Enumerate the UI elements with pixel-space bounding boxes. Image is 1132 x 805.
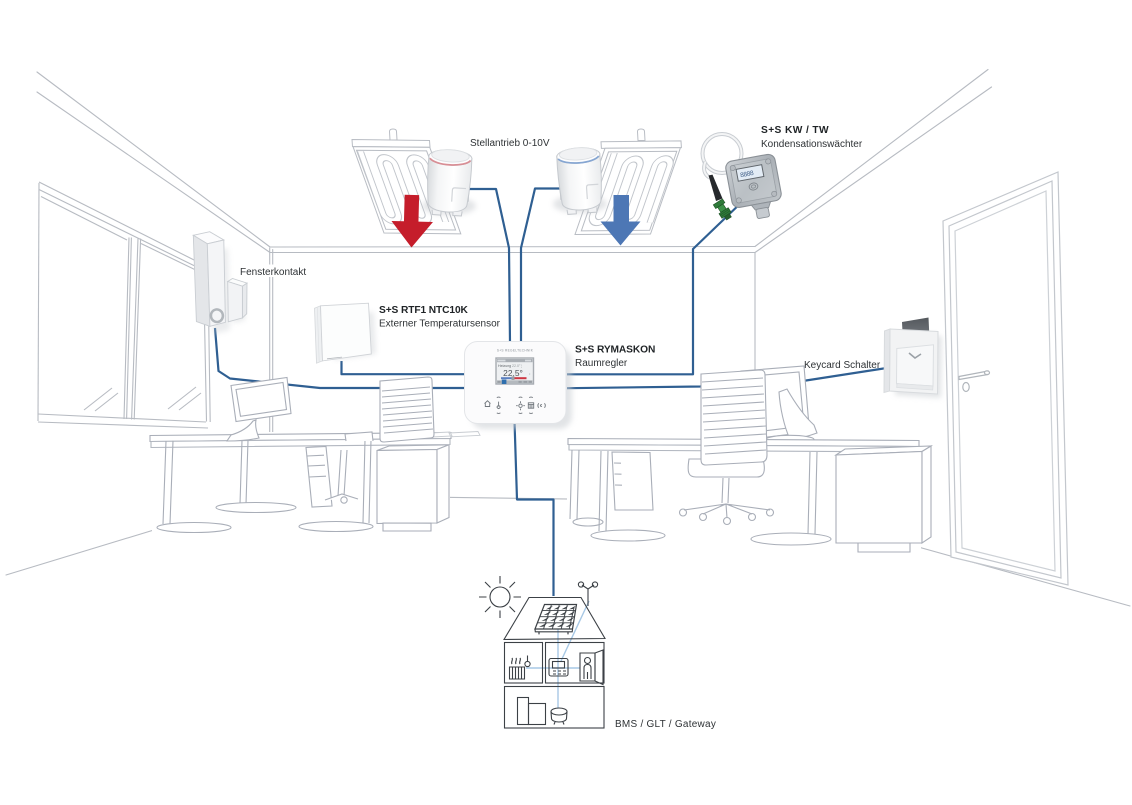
svg-text:Stellantrieb 0-10V: Stellantrieb 0-10V <box>470 138 550 149</box>
svg-text:Keycard Schalter: Keycard Schalter <box>804 360 881 371</box>
svg-text:S+S RTF1 NTC10K: S+S RTF1 NTC10K <box>379 305 469 316</box>
svg-text:Kondensationswächter: Kondensationswächter <box>761 139 863 150</box>
svg-text:S+S REGELTECHNIK: S+S REGELTECHNIK <box>497 349 534 353</box>
svg-text:Fensterkontakt: Fensterkontakt <box>240 267 306 278</box>
svg-text:S+S RYMASKON: S+S RYMASKON <box>575 345 655 356</box>
svg-text:S+S KW / TW: S+S KW / TW <box>761 125 829 136</box>
svg-text:BMS / GLT / Gateway: BMS / GLT / Gateway <box>615 719 716 730</box>
svg-text:Raumregler: Raumregler <box>575 358 628 369</box>
svg-text:Externer Temperatursensor: Externer Temperatursensor <box>379 319 501 330</box>
